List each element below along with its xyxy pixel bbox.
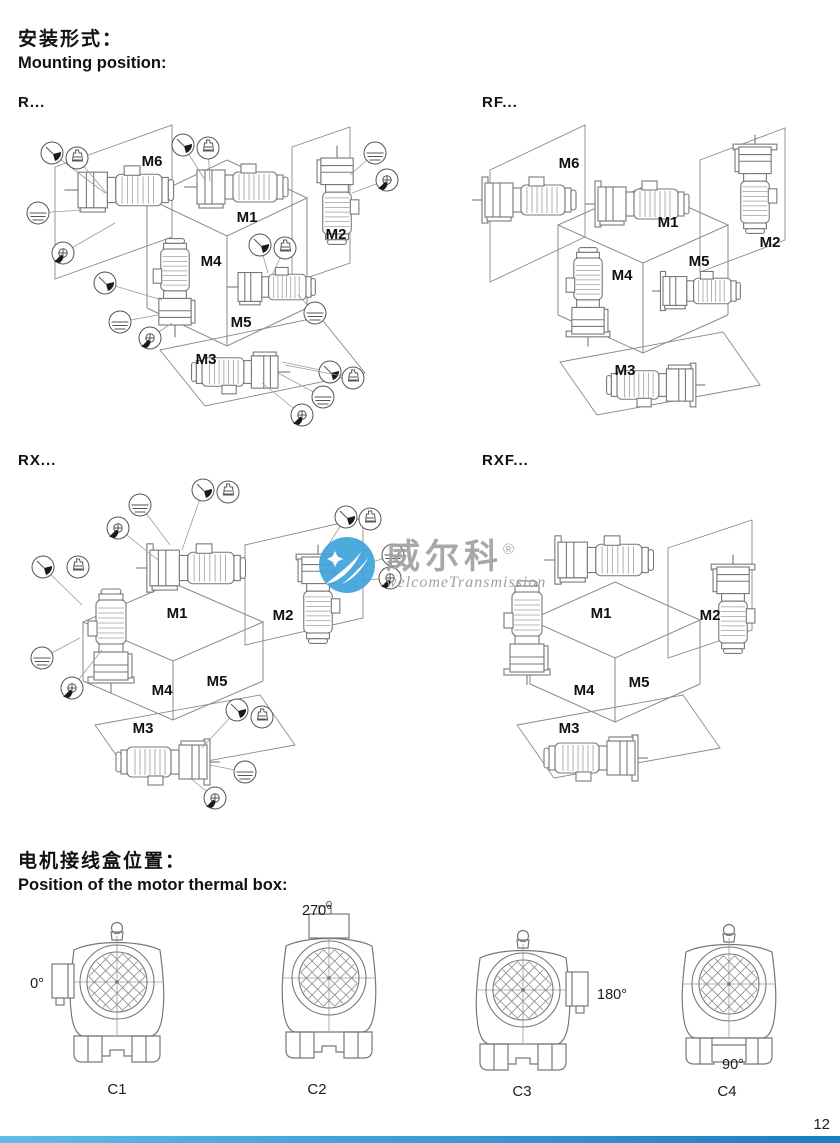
series-label-rx: RX...	[18, 452, 56, 469]
vent-icon	[192, 479, 214, 501]
mounting-diagram-rx: M1M2M3M4M5	[10, 470, 450, 820]
vent-icon	[94, 272, 116, 294]
gear-motor-glyph	[504, 581, 550, 685]
position-label-m4: M4	[152, 682, 173, 699]
brand-name-en: welcomeTransmission	[386, 574, 546, 592]
breather-icon	[342, 367, 364, 389]
position-label-m3: M3	[615, 362, 636, 379]
view-label-c3: C3	[502, 1083, 542, 1100]
position-label-m5: M5	[207, 673, 228, 690]
breather-icon	[359, 508, 381, 530]
position-label-m5: M5	[231, 314, 252, 331]
registered-mark: ®	[503, 541, 514, 558]
position-label-m2: M2	[273, 607, 294, 624]
oil-level-icon	[312, 386, 334, 408]
gear-motor-glyph	[153, 239, 195, 338]
gear-motor-glyph	[136, 544, 245, 592]
gear-motor-glyph	[652, 271, 740, 310]
oil-level-icon	[31, 647, 53, 669]
position-label-m5: M5	[689, 253, 710, 270]
gear-motor-glyph	[566, 248, 610, 347]
view-label-c1: C1	[97, 1081, 137, 1098]
breather-icon	[67, 556, 89, 578]
brand-name-zh: 威尔科	[386, 538, 503, 576]
view-label-c4: C4	[707, 1083, 747, 1100]
angle-label-90: 90°	[708, 1057, 758, 1073]
oil-level-icon	[234, 761, 256, 783]
mounting-diagram-r: M1M2M3M4M5M6	[10, 115, 420, 450]
breather-icon	[274, 237, 296, 259]
position-label-m6: M6	[559, 155, 580, 172]
mounting-heading-zh: 安装形式：	[18, 24, 123, 51]
oil-drain-icon	[139, 327, 161, 349]
mounting-heading-en: Mounting position:	[18, 54, 166, 73]
position-label-m1: M1	[591, 605, 612, 622]
position-label-m2: M2	[326, 226, 347, 243]
gear-motor-glyph	[544, 536, 653, 584]
thermalbox-heading-en: Position of the motor thermal box:	[18, 876, 288, 895]
gear-motor-glyph	[64, 166, 173, 212]
gear-motor-glyph	[472, 177, 576, 223]
position-label-m1: M1	[167, 605, 188, 622]
breather-icon	[197, 137, 219, 159]
motor-front-view-c2	[262, 898, 396, 1071]
series-label-rxf: RXF...	[482, 452, 529, 469]
position-label-m3: M3	[196, 351, 217, 368]
page-number: 12	[813, 1116, 830, 1133]
view-label-c2: C2	[297, 1081, 337, 1098]
position-label-m3: M3	[559, 720, 580, 737]
motor-front-view-c4	[662, 904, 796, 1077]
oil-level-icon	[364, 142, 386, 164]
oil-drain-icon	[204, 787, 226, 809]
brand-logo-icon	[316, 532, 378, 594]
vent-icon	[41, 142, 63, 164]
oil-drain-icon	[291, 404, 313, 426]
oil-drain-icon	[107, 517, 129, 539]
gear-motor-glyph	[544, 735, 648, 781]
oil-level-icon	[129, 494, 151, 516]
oil-drain-icon	[52, 242, 74, 264]
vent-icon	[32, 556, 54, 578]
oil-level-icon	[27, 202, 49, 224]
oil-level-icon	[304, 302, 326, 324]
position-label-m6: M6	[142, 153, 163, 170]
position-label-m4: M4	[612, 267, 633, 284]
thermalbox-heading-zh: 电机接线盒位置：	[18, 846, 186, 873]
vent-icon	[226, 699, 248, 721]
breather-icon	[217, 481, 239, 503]
oil-level-icon	[109, 311, 131, 333]
gear-motor-glyph	[711, 555, 755, 654]
position-label-m2: M2	[700, 607, 721, 624]
oil-drain-icon	[61, 677, 83, 699]
position-label-m2: M2	[760, 234, 781, 251]
gear-motor-glyph	[184, 164, 288, 208]
motor-front-view-c1	[50, 902, 184, 1075]
watermark: 威尔科® welcomeTransmission	[316, 532, 546, 594]
position-label-m4: M4	[201, 253, 222, 270]
position-label-m3: M3	[133, 720, 154, 737]
position-label-m1: M1	[237, 209, 258, 226]
breather-icon	[66, 147, 88, 169]
angle-label-0: 0°	[12, 976, 62, 992]
mounting-diagram-rxf: M1M2M3M4M5	[440, 470, 840, 820]
oil-drain-icon	[376, 169, 398, 191]
series-label-r: R...	[18, 94, 45, 111]
breather-icon	[251, 706, 273, 728]
mounting-diagram-rf: M1M2M3M4M5M6	[460, 85, 840, 435]
vent-icon	[335, 506, 357, 528]
angle-label-180: 180°	[587, 987, 637, 1003]
position-label-m5: M5	[629, 674, 650, 691]
gear-motor-glyph	[733, 135, 777, 234]
position-label-m4: M4	[574, 682, 595, 699]
vent-icon	[249, 234, 271, 256]
footer-accent-bar	[0, 1136, 840, 1143]
motor-front-view-c3	[456, 910, 590, 1083]
vent-icon	[172, 134, 194, 156]
catalog-page: 安装形式： Mounting position: R... RF... RX..…	[0, 0, 840, 1143]
position-label-m1: M1	[658, 214, 679, 231]
angle-label-270: 270°	[292, 903, 342, 919]
